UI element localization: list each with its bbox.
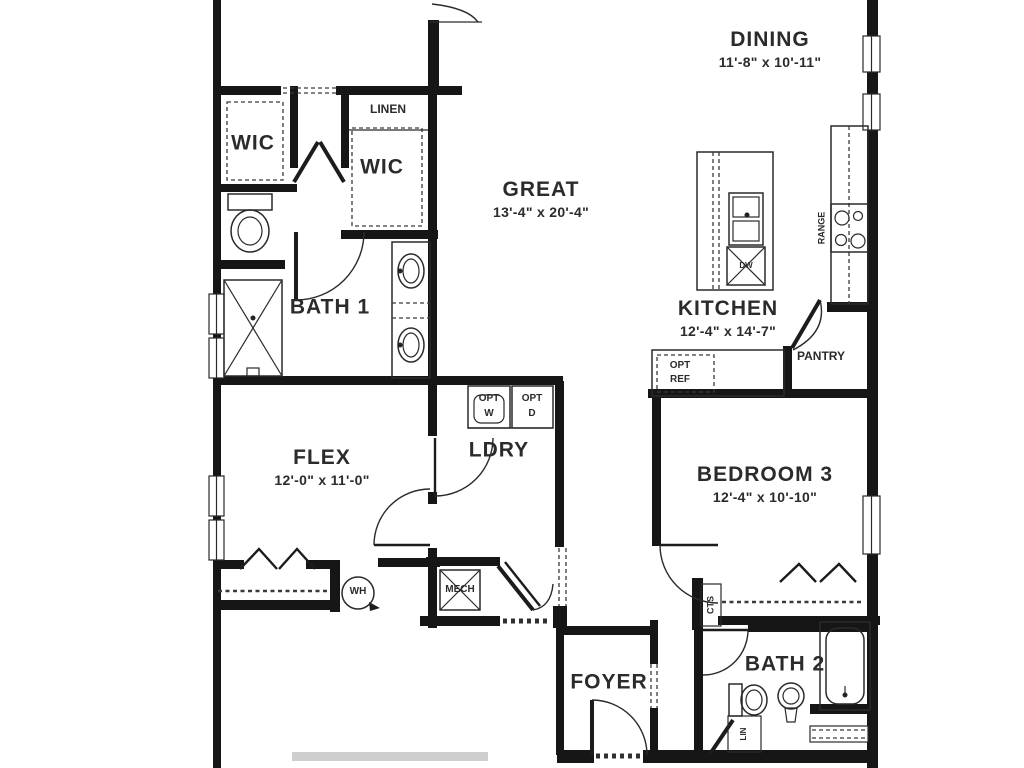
- room-name: BEDROOM 3: [697, 464, 833, 485]
- room-label-wic-right: WIC: [360, 157, 404, 178]
- label-opt-d-2: D: [528, 409, 535, 419]
- island-sink: [729, 193, 763, 245]
- room-label-flex: FLEX 12'-0" x 11'-0": [274, 447, 369, 487]
- toilet-bath2: [729, 684, 767, 716]
- room-label-dining: DINING 11'-8" x 10'-11": [719, 29, 822, 69]
- door-bath2: [703, 630, 748, 675]
- label-opt-w-1: OPT: [479, 394, 500, 404]
- door-mech: [498, 562, 553, 621]
- toilet-bath1: [228, 194, 272, 252]
- window-bedroom3: [863, 496, 880, 554]
- flex-closet-bifold: [240, 549, 315, 569]
- door-flex: [374, 489, 430, 545]
- room-label-kitchen: KITCHEN 12'-4" x 14'-7": [678, 298, 778, 338]
- room-label-bedroom3: BEDROOM 3 12'-4" x 10'-10": [697, 464, 833, 504]
- window-flex-b: [209, 520, 224, 560]
- label-lin: LIN: [740, 728, 748, 741]
- label-linen: LINEN: [370, 103, 406, 115]
- label-dw: DW: [739, 262, 752, 270]
- kitchen-island: [697, 152, 773, 290]
- label-pantry: PANTRY: [797, 350, 845, 362]
- room-label-wic-left: WIC: [231, 133, 275, 154]
- room-dims: 12'-4" x 14'-7": [678, 324, 778, 338]
- opening-foyer-hall: [651, 664, 657, 708]
- room-label-foyer: FOYER: [570, 672, 647, 693]
- window-flex-a: [209, 476, 224, 516]
- label-opt-d-1: OPT: [522, 394, 543, 404]
- door-wic-pair: [294, 142, 344, 182]
- room-name: FOYER: [570, 672, 647, 693]
- bedroom3-closet-bifold: [780, 564, 856, 582]
- label-opt-ref-2: REF: [670, 375, 690, 385]
- vanity-bath1: [392, 242, 430, 378]
- opening-great-hall: [559, 548, 566, 606]
- window-bath1-a: [209, 294, 224, 334]
- room-label-great: GREAT 13'-4" x 20'-4": [493, 179, 589, 219]
- room-name: BATH 2: [745, 654, 825, 675]
- room-name: GREAT: [493, 179, 589, 200]
- window-bath2: [810, 726, 868, 742]
- shower-bath1: [224, 280, 282, 376]
- room-name: BATH 1: [290, 297, 370, 318]
- door-bath1: [296, 232, 364, 300]
- label-range: RANGE: [818, 212, 827, 245]
- door-front-entry: [592, 700, 647, 756]
- label-cts: CTS: [707, 596, 716, 614]
- window-dining-a: [863, 36, 880, 72]
- floor-plan: DINING 11'-8" x 10'-11" GREAT 13'-4" x 2…: [0, 0, 1024, 768]
- room-label-bath1: BATH 1: [290, 297, 370, 318]
- porch-edge: [292, 752, 488, 761]
- window-bath1-b: [209, 338, 224, 378]
- room-name: DINING: [719, 29, 822, 50]
- interior-walls: [213, 20, 880, 758]
- label-opt-ref-1: OPT: [670, 361, 691, 371]
- bath1-fixtures: [224, 194, 430, 378]
- room-label-bath2: BATH 2: [745, 654, 825, 675]
- floor-plan-linework: [0, 0, 1024, 768]
- kitchen-counter: [831, 126, 868, 304]
- door-lin-closet: [710, 720, 733, 754]
- room-label-ldry: LDRY: [469, 440, 529, 461]
- room-dims: 13'-4" x 20'-4": [493, 205, 589, 219]
- label-opt-w-2: W: [484, 409, 493, 419]
- room-dims: 11'-8" x 10'-11": [719, 55, 822, 69]
- room-dims: 12'-4" x 10'-10": [697, 490, 833, 504]
- room-dims: 12'-0" x 11'-0": [274, 473, 369, 487]
- door-bedroom3: [660, 545, 718, 603]
- pedestal-sink: [778, 683, 804, 722]
- room-name: KITCHEN: [678, 298, 778, 319]
- door-pantry: [792, 300, 821, 350]
- window-dining-b: [863, 94, 880, 130]
- room-name: WIC: [231, 133, 275, 154]
- label-wh: WH: [350, 587, 367, 597]
- bathtub: [820, 622, 870, 710]
- label-mech: MECH: [445, 585, 474, 595]
- room-name: FLEX: [274, 447, 369, 468]
- room-name: LDRY: [469, 440, 529, 461]
- door-primary-suite: [430, 4, 482, 22]
- room-name: WIC: [360, 157, 404, 178]
